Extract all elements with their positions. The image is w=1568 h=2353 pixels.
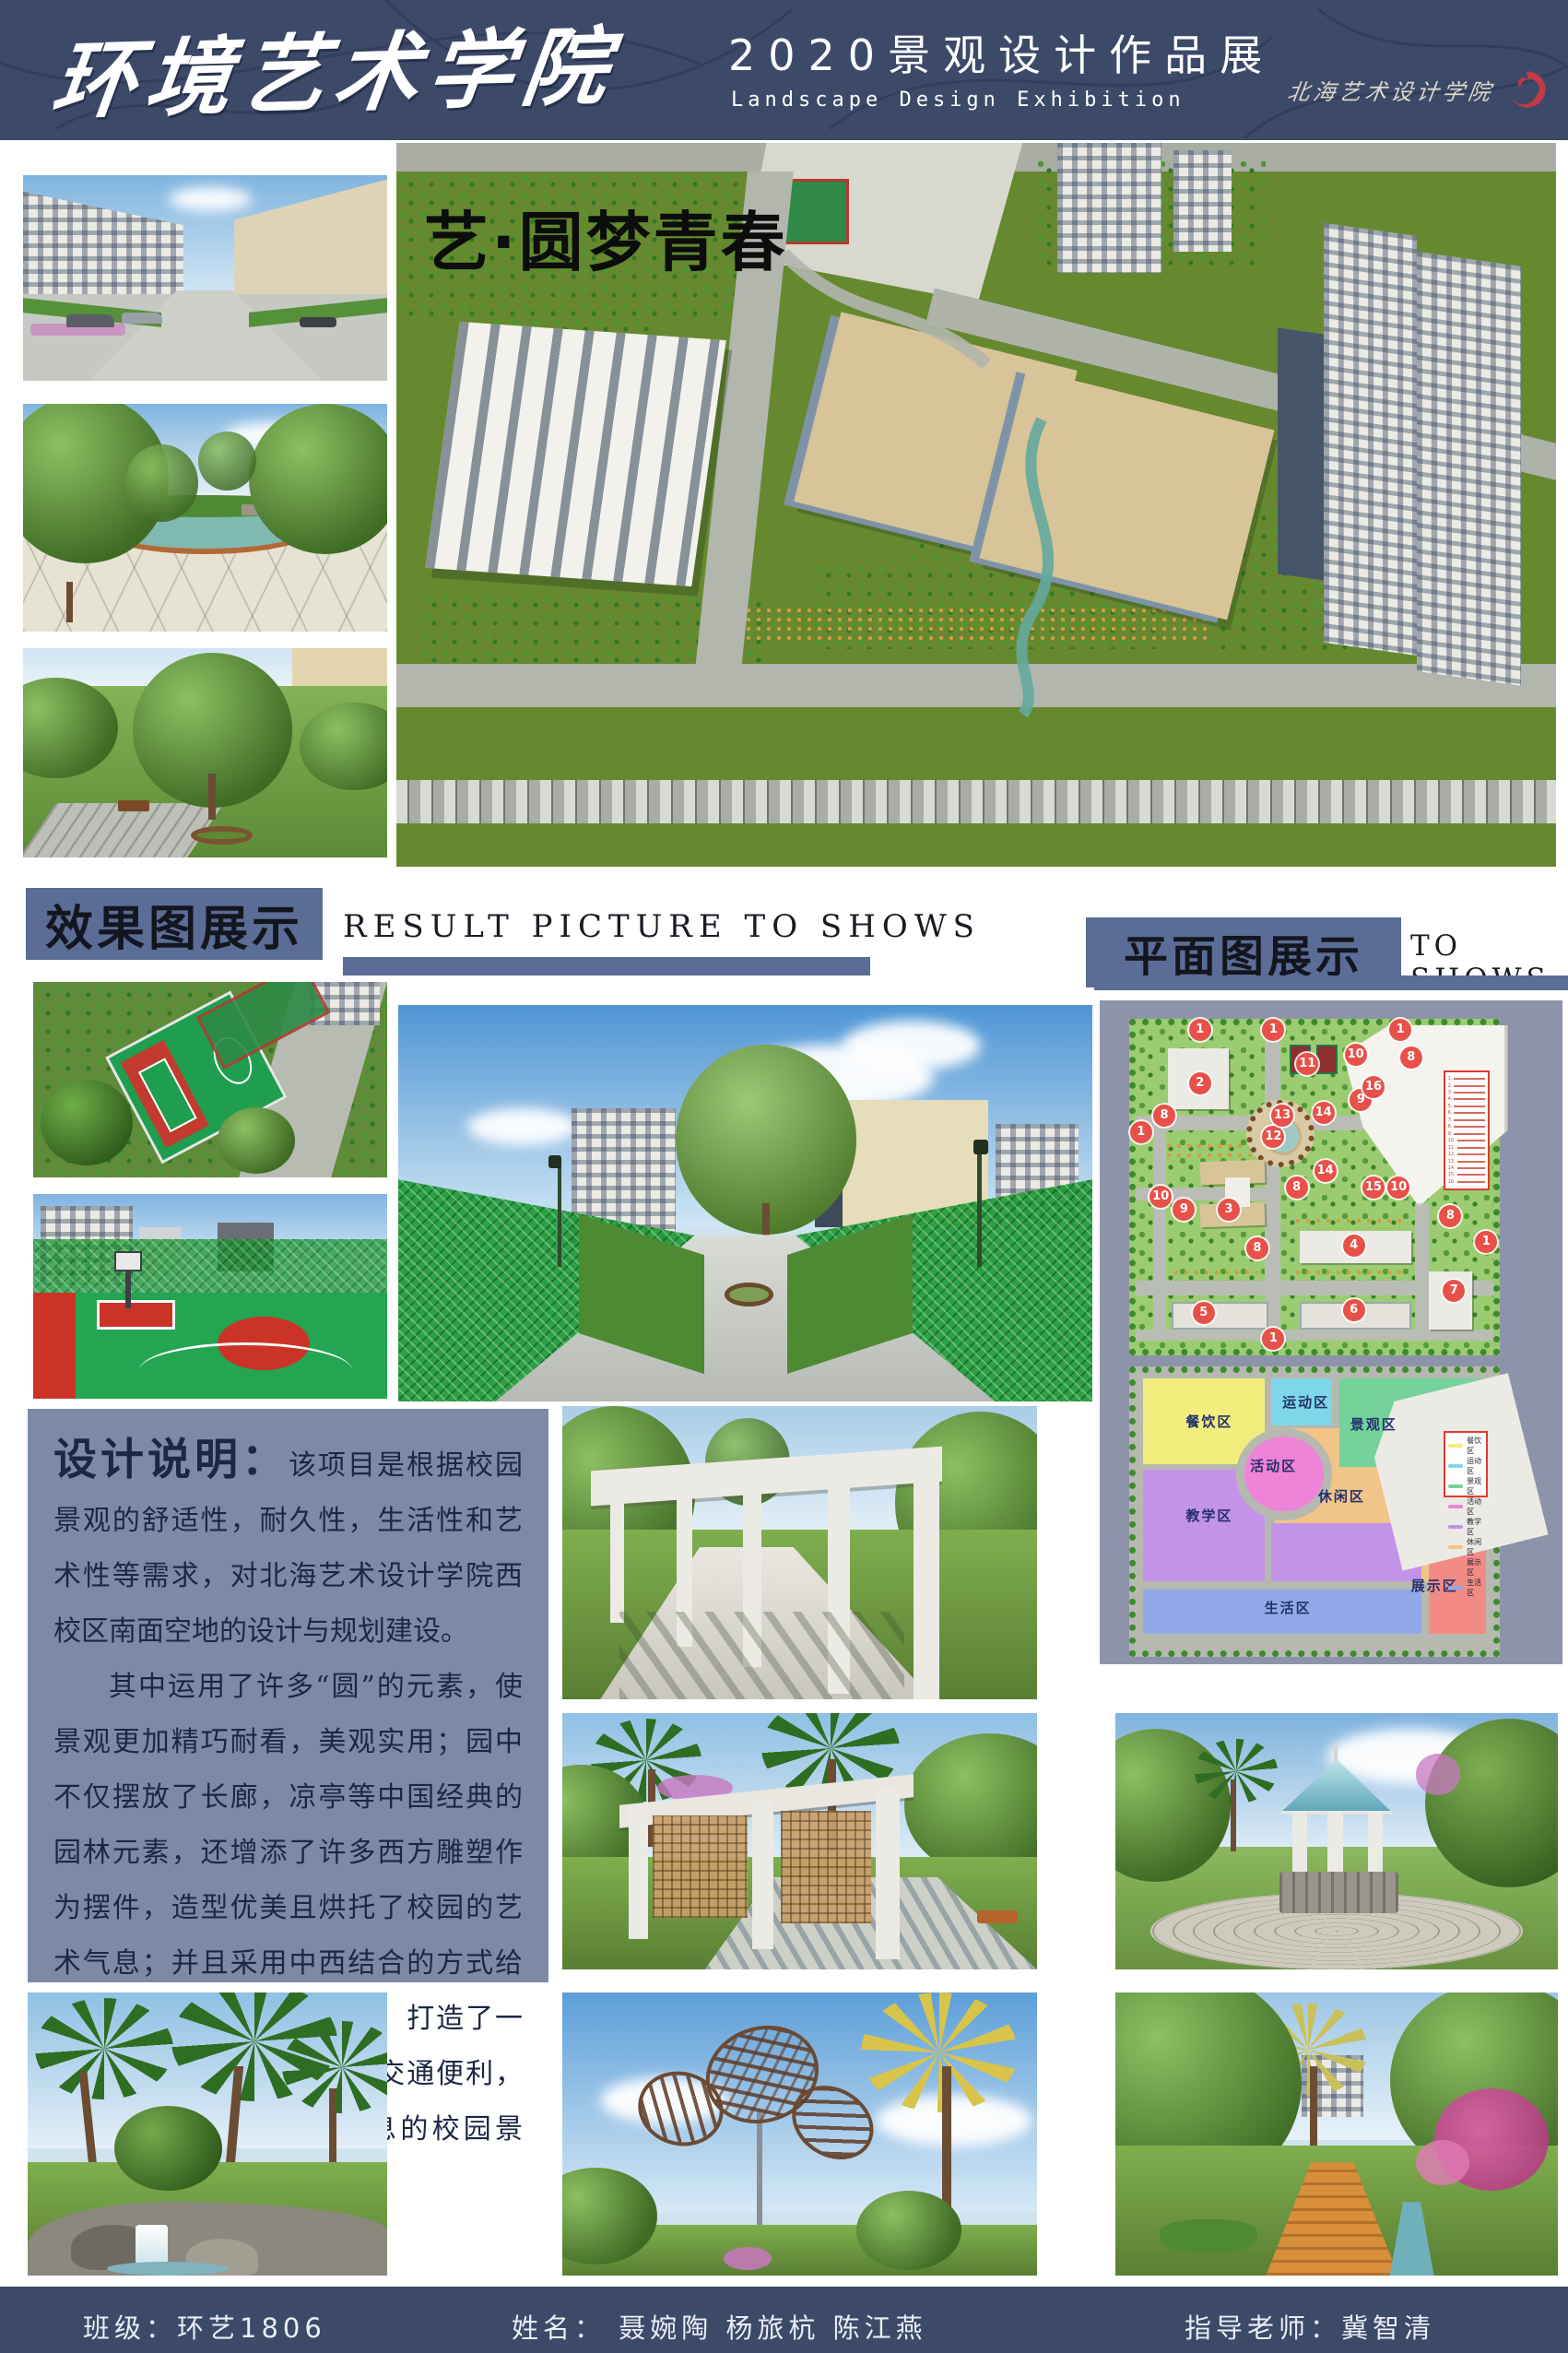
plan-marker-10: 10 (1387, 1176, 1409, 1199)
zoning-legend-row: 展示区 (1448, 1557, 1484, 1578)
lattice-panel (653, 1815, 748, 1918)
plan-marker-10: 10 (1345, 1044, 1367, 1066)
zoning-legend-row: 休闲区 (1448, 1537, 1484, 1557)
lattice-panel (781, 1811, 871, 1923)
results-section-rule (343, 957, 870, 975)
site-plan-markers: 111111234567888889910101011121314141516 (1136, 1025, 1493, 1349)
plan-marker-14: 14 (1313, 1102, 1335, 1124)
zoning-legend-row: 餐饮区 (1448, 1436, 1484, 1456)
poster-page: { "header": { "bg": "#3d4969", "college_… (0, 0, 1568, 2353)
render-pergola-lattice (562, 1713, 1037, 1969)
render-walkway-panorama (398, 1005, 1092, 1401)
plan-marker-10: 10 (1149, 1186, 1172, 1208)
plan-marker-9: 9 (1173, 1199, 1195, 1221)
render-lawn-garden (23, 648, 387, 857)
car (66, 314, 114, 327)
plan-marker-1: 1 (1262, 1328, 1284, 1350)
results-section-subtitle: RESULT PICTURE TO SHOWS (343, 908, 981, 945)
motorbike (300, 317, 336, 327)
blossom-tree (1416, 1754, 1460, 1794)
plan-marker-15: 15 (1362, 1176, 1385, 1199)
zone-label: 餐饮区 (1185, 1412, 1232, 1431)
plan-marker-13: 13 (1271, 1105, 1293, 1127)
plan-marker-12: 12 (1262, 1126, 1284, 1148)
plan-marker-2: 2 (1189, 1072, 1211, 1094)
plan-marker-1: 1 (1475, 1231, 1497, 1253)
footer-class: 班级：环艺1806 (83, 2307, 326, 2346)
results-section-title-block: 效果图展示 (26, 888, 323, 960)
header-banner: 环境艺术学院 2020景观设计作品展 Landscape Design Exhi… (0, 0, 1568, 140)
plan-marker-1: 1 (1262, 1019, 1284, 1041)
car (122, 313, 162, 324)
render-courts-aerial (33, 982, 387, 1177)
tree-planter (725, 1283, 773, 1307)
zone-label: 休闲区 (1318, 1486, 1365, 1506)
zoning-legend: 餐饮区运动区景观区活动区教学区休闲区展示区生活区 (1444, 1431, 1489, 1497)
bench (118, 800, 149, 811)
plan-marker-8: 8 (1153, 1105, 1175, 1127)
zoning-plan: 餐饮区 运动区 景观区 活动区 休闲区 教学区 生活区 展示区 餐饮区运动区景观… (1129, 1366, 1500, 1657)
plan-marker-11: 11 (1296, 1053, 1318, 1075)
sculpture-stem (757, 2111, 762, 2236)
zone-label: 生活区 (1265, 1598, 1312, 1617)
footer-advisor: 指导老师：冀智清 (1185, 2307, 1435, 2346)
plan-marker-8: 8 (1246, 1237, 1268, 1259)
render-glass-pavilion (1115, 1713, 1558, 1969)
render-flower-sculpture (562, 1992, 1037, 2276)
plan-marker-6: 6 (1343, 1299, 1365, 1321)
school-logo-text: 北海艺术设计学院 (1286, 74, 1497, 106)
college-name: 环境艺术学院 (46, 0, 625, 136)
pond (107, 2262, 230, 2276)
school-logo-swirl-icon (1505, 68, 1548, 111)
description-paragraph-1: 设计说明：该项目是根据校园景观的舒适性，耐久性，生活性和艺术性等需求，对北海艺术… (53, 1433, 523, 1660)
plan-marker-1: 1 (1130, 1121, 1152, 1143)
pavilion-base (1279, 1872, 1399, 1912)
exhibition-title: 2020景观设计作品展 (728, 22, 1275, 83)
results-section-title: 效果图展示 (45, 890, 303, 959)
zoning-legend-row: 活动区 (1448, 1496, 1484, 1517)
zone-label: 教学区 (1185, 1506, 1232, 1525)
exhibition-subtitle: Landscape Design Exhibition (731, 89, 1185, 112)
plan-marker-16: 16 (1362, 1076, 1385, 1098)
site-plan: 1.2.3.4.5.6.7.8.9.10.11.12.13.14.15.16. … (1129, 1019, 1500, 1355)
zone-label: 活动区 (1250, 1456, 1297, 1475)
waterfall (136, 2225, 168, 2264)
plan-marker-5: 5 (1193, 1302, 1215, 1324)
plan-marker-4: 4 (1343, 1235, 1365, 1257)
footer-banner: 班级：环艺1806 姓名： 聂婉陶 杨旅杭 陈江燕 指导老师：冀智清 (0, 2287, 1568, 2353)
plan-marker-1: 1 (1189, 1019, 1211, 1041)
plan-marker-8: 8 (1286, 1176, 1308, 1199)
plan-marker-1: 1 (1389, 1019, 1411, 1041)
flower-bed (724, 2247, 772, 2270)
render-basketball-court (33, 1194, 387, 1399)
lamp-post (977, 1148, 982, 1267)
zone-label: 景观区 (1350, 1414, 1397, 1434)
design-description: 设计说明：该项目是根据校园景观的舒适性，耐久性，生活性和艺术性等需求，对北海艺术… (28, 1409, 548, 1982)
render-pergola-corridor (562, 1406, 1037, 1699)
zoning-legend-row: 教学区 (1448, 1517, 1484, 1537)
plan-marker-7: 7 (1443, 1280, 1465, 1302)
render-garden-path (1115, 1992, 1558, 2276)
footer-names: 姓名： 聂婉陶 杨旅杭 陈江燕 (512, 2307, 927, 2346)
render-campus-aerial-master: 艺·圆梦青春 (396, 143, 1556, 867)
palm-tree (861, 1992, 1018, 2112)
bougainvillea (1416, 2140, 1469, 2185)
render-palm-rockery (28, 1992, 387, 2276)
plan-marker-8: 8 (1400, 1046, 1422, 1069)
hero-title: 艺·圆梦青春 (424, 191, 788, 284)
render-campus-street (23, 175, 387, 381)
zone-label: 运动区 (1282, 1392, 1329, 1412)
zoning-legend-row: 生活区 (1448, 1578, 1484, 1598)
plans-panel: 1.2.3.4.5.6.7.8.9.10.11.12.13.14.15.16. … (1100, 1000, 1562, 1664)
plans-section-rule (1094, 975, 1568, 990)
palm-tree (35, 1998, 173, 2099)
plan-marker-3: 3 (1218, 1199, 1240, 1221)
bench (977, 1910, 1018, 1923)
palm-tree (1195, 1739, 1278, 1803)
description-heading: 设计说明： (53, 1435, 289, 1485)
plan-marker-14: 14 (1315, 1160, 1337, 1182)
zoning-legend-row: 运动区 (1448, 1456, 1484, 1476)
zoning-legend-row: 景观区 (1448, 1476, 1484, 1496)
plan-marker-8: 8 (1439, 1205, 1461, 1227)
render-central-plaza (23, 404, 387, 632)
lamp-post (558, 1164, 561, 1267)
